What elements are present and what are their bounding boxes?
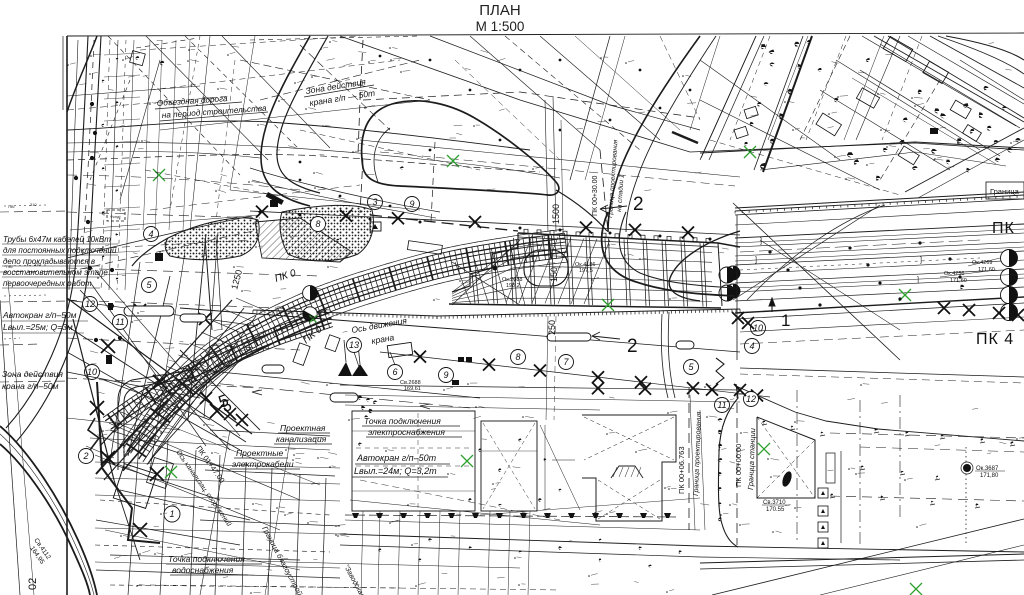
svg-text:Проектные: Проектные: [236, 448, 283, 458]
svg-text:9: 9: [409, 199, 414, 209]
svg-text:крана г/п–50м: крана г/п–50м: [2, 381, 59, 391]
svg-text:Точка подключения: Точка подключения: [364, 416, 441, 426]
svg-text:1: 1: [781, 311, 790, 330]
svg-text:171,80: 171,80: [980, 473, 999, 479]
svg-text:электрокабели: электрокабели: [232, 459, 294, 469]
svg-text:9: 9: [443, 370, 448, 380]
svg-text:ПВГ: ПВГ: [8, 204, 17, 209]
svg-text:восстановительном этапе: восстановительном этапе: [3, 268, 108, 277]
svg-text:]: ]: [920, 257, 922, 264]
svg-text:первоочередных работ: первоочередных работ: [3, 279, 92, 288]
svg-text:Автокран г/п–50m: Автокран г/п–50m: [356, 453, 437, 463]
svg-text:6: 6: [392, 367, 397, 377]
svg-text:депо прокладываются в: депо прокладываются в: [3, 257, 95, 266]
svg-text:ПК 00+06.763: ПК 00+06.763: [677, 446, 686, 494]
svg-text:2: 2: [627, 336, 638, 357]
svg-text:ПК 00+30.00: ПК 00+30.00: [592, 175, 599, 216]
svg-text:250: 250: [547, 320, 557, 335]
svg-text:193,2: 193,2: [506, 283, 520, 289]
svg-text:водоснабжения: водоснабжения: [172, 565, 234, 575]
svg-text:]: ]: [755, 257, 757, 264]
svg-text:электроснабжения: электроснабжения: [368, 427, 445, 437]
svg-text:170.55: 170.55: [766, 507, 785, 513]
svg-text:Lвыл.=24м; Q=3,2m: Lвыл.=24м; Q=3,2m: [354, 466, 437, 476]
svg-text:]: ]: [917, 277, 919, 284]
svg-text:М 1:500: М 1:500: [476, 19, 525, 34]
svg-text:11: 11: [115, 317, 124, 327]
svg-text:2: 2: [633, 194, 644, 215]
svg-text:10: 10: [87, 367, 97, 377]
svg-text:150: 150: [549, 267, 559, 282]
svg-text:Lвыл.=25м; Q=3м: Lвыл.=25м; Q=3м: [3, 322, 73, 332]
svg-text:канализация: канализация: [276, 434, 327, 444]
svg-text:ПК 4: ПК 4: [976, 331, 1014, 348]
svg-text:Трубы 6х47м кабелей 10кВт: Трубы 6х47м кабелей 10кВт: [3, 235, 111, 244]
svg-text:13: 13: [349, 340, 359, 350]
svg-text:2: 2: [82, 451, 88, 461]
svg-text:Зона действия: Зона действия: [2, 369, 63, 379]
svg-text:197,5: 197,5: [579, 268, 593, 274]
svg-text:Автокран г/п–50м: Автокран г/п–50м: [2, 310, 77, 320]
svg-text:310: 310: [30, 202, 37, 207]
svg-text:8: 8: [315, 219, 320, 229]
svg-text:171,60: 171,60: [950, 278, 967, 284]
svg-text:Граница: Граница: [990, 187, 1020, 196]
svg-text:3: 3: [372, 197, 377, 207]
svg-text:8: 8: [515, 352, 520, 362]
svg-text:169,61: 169,61: [404, 386, 421, 392]
svg-text:12: 12: [746, 394, 756, 404]
svg-text:4: 4: [749, 341, 754, 351]
svg-text:Проектная: Проектная: [280, 423, 326, 433]
svg-text:ПЛАН: ПЛАН: [479, 2, 520, 19]
svg-text:1: 1: [169, 509, 174, 519]
